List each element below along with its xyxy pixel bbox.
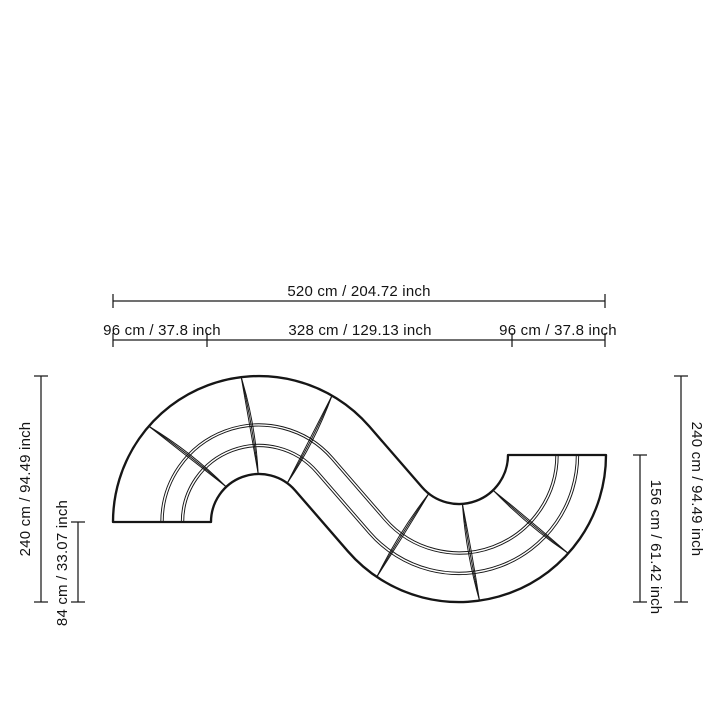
sofa-module-seam	[287, 396, 332, 484]
dim-overall-width-label: 520 cm / 204.72 inch	[287, 283, 430, 300]
sofa-module-seam	[149, 426, 227, 487]
diagram-svg: 520 cm / 204.72 inch 96 cm / 37.8 inch 3…	[0, 0, 720, 720]
furniture-dimension-diagram: 520 cm / 204.72 inch 96 cm / 37.8 inch 3…	[0, 0, 720, 720]
sofa-module-seam	[377, 494, 429, 577]
dim-left-end-depth-label: 84 cm / 33.07 inch	[54, 500, 71, 626]
sofa-module-seam	[241, 377, 258, 474]
dim-left-overall-depth-label: 240 cm / 94.49 inch	[17, 422, 34, 557]
dim-overall-width: 520 cm / 204.72 inch	[113, 283, 605, 308]
dim-left-overall-depth: 240 cm / 94.49 inch	[17, 376, 48, 602]
dim-left-module-label: 96 cm / 37.8 inch	[103, 322, 221, 339]
dim-right-end-depth-label: 156 cm / 61.42 inch	[647, 480, 664, 615]
dim-middle-section-label: 328 cm / 129.13 inch	[288, 322, 431, 339]
sofa-module-seam	[493, 490, 568, 553]
dim-right-overall-depth: 240 cm / 94.49 inch	[674, 376, 705, 602]
sofa-outline	[113, 376, 606, 602]
dim-right-overall-depth-label: 240 cm / 94.49 inch	[688, 422, 705, 557]
sofa-piping-line	[181, 444, 576, 572]
dim-right-end-depth: 156 cm / 61.42 inch	[633, 455, 664, 614]
dim-right-module-label: 96 cm / 37.8 inch	[499, 322, 617, 339]
dim-module-widths: 96 cm / 37.8 inch 328 cm / 129.13 inch 9…	[103, 322, 617, 347]
dim-left-end-depth: 84 cm / 33.07 inch	[54, 500, 85, 626]
sofa-plan-drawing	[113, 376, 606, 602]
